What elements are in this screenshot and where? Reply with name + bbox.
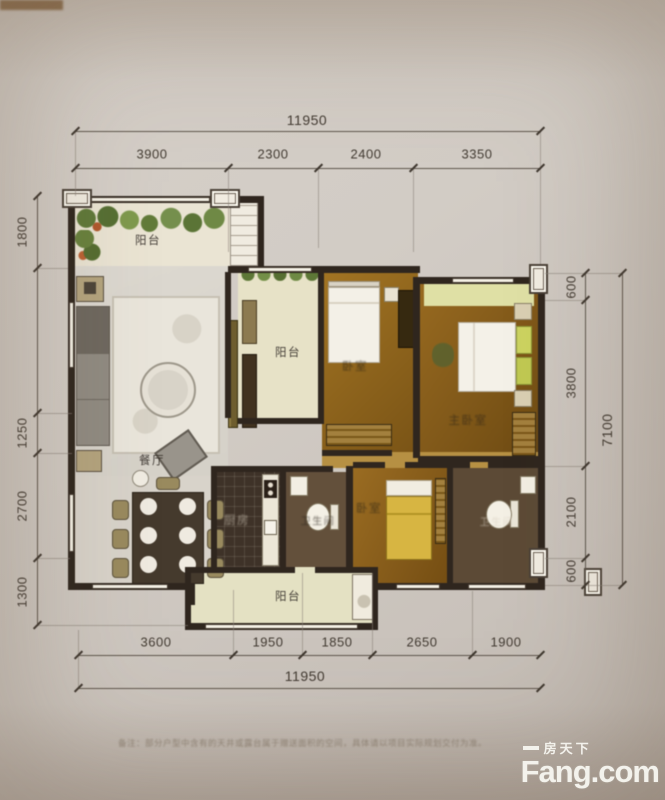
extension-line xyxy=(37,625,188,626)
pillar-ornament xyxy=(529,264,548,294)
dim-bottom-seg-3: 1850 xyxy=(322,635,353,650)
wall xyxy=(538,277,545,590)
room-label-bedroom-bottom: 卧室 xyxy=(356,500,382,516)
wall xyxy=(447,466,453,583)
dim-top-seg-4: 3350 xyxy=(462,147,493,162)
extension-line xyxy=(545,300,585,301)
balcony-cabinet-upper xyxy=(242,300,257,344)
extension-line xyxy=(545,466,585,467)
dim-right-seg-1: 600 xyxy=(564,275,579,298)
dimension-tick xyxy=(536,683,545,692)
window xyxy=(396,584,440,589)
balcony-cabinet-lower xyxy=(242,354,257,428)
window xyxy=(69,302,74,368)
wall xyxy=(488,462,545,468)
sofa xyxy=(76,306,110,446)
master-pillow xyxy=(516,326,532,354)
wall xyxy=(211,472,217,567)
coffee-table xyxy=(140,362,196,418)
extension-line xyxy=(78,630,79,688)
bed-yellow xyxy=(386,496,432,560)
nightstand xyxy=(514,303,532,320)
wall xyxy=(346,466,353,567)
bed-pillow xyxy=(386,480,432,496)
room-label-dining: 餐厅 xyxy=(139,452,165,468)
chair xyxy=(112,558,129,578)
pillar-ornament xyxy=(62,189,92,208)
pillar-ornament xyxy=(210,189,240,208)
dim-top-total: 11950 xyxy=(287,112,327,128)
dim-line-bottom-total xyxy=(78,688,540,689)
entry-cabinet xyxy=(230,202,258,266)
extension-line xyxy=(37,453,72,454)
photo-edge-artifact xyxy=(0,0,63,10)
room-label-balcony-mid: 阳台 xyxy=(275,344,301,360)
master-wardrobe xyxy=(512,412,536,456)
dim-line-right-chain xyxy=(585,273,586,585)
stove xyxy=(264,480,277,498)
chair xyxy=(112,529,129,549)
bed xyxy=(328,287,380,363)
master-pillow xyxy=(516,357,532,385)
room-label-bathroom-2: 卫生间 xyxy=(480,514,515,529)
wall xyxy=(185,567,295,573)
dim-right-total: 7100 xyxy=(599,413,615,446)
kitchen-sink xyxy=(264,520,277,535)
room-label-balcony-top: 阳台 xyxy=(135,232,161,248)
dim-bottom-total: 11950 xyxy=(285,668,325,684)
stool xyxy=(132,470,149,487)
plate xyxy=(179,527,196,544)
master-bed xyxy=(458,322,516,392)
window xyxy=(69,494,74,552)
plate xyxy=(179,498,196,515)
dim-bottom-seg-4: 2650 xyxy=(407,635,438,650)
dim-bottom-seg-5: 1900 xyxy=(491,635,522,650)
extension-line xyxy=(37,413,72,414)
wall xyxy=(225,272,231,418)
wall xyxy=(322,450,392,456)
extension-line xyxy=(372,573,373,655)
side-table-inner xyxy=(84,282,96,294)
fang-watermark: 房天下 Fang.com xyxy=(521,738,659,786)
window xyxy=(82,197,210,202)
dim-top-seg-3: 2400 xyxy=(351,147,382,162)
chair xyxy=(156,477,180,490)
wall xyxy=(188,583,195,605)
floorplan-photo: 阳台 阳台 餐厅 卧室 主卧室 厨房 卫生间 卧室 卫生间 阳台 xyxy=(0,0,665,800)
plate xyxy=(140,527,157,544)
wall xyxy=(238,418,324,424)
window xyxy=(92,584,168,589)
extension-line xyxy=(540,131,541,264)
bathroom-1-sink xyxy=(290,476,308,496)
disclaimer-note: 备注：部分户型中含有的天井或露台属于赠送面积的空间，具体请以项目实际规划交付为准… xyxy=(118,737,558,749)
chair xyxy=(112,500,129,520)
extension-line xyxy=(37,268,68,269)
side-table-2 xyxy=(76,450,102,472)
wall xyxy=(211,466,333,472)
dim-left-seg-1: 1800 xyxy=(15,217,30,248)
extension-line xyxy=(413,168,414,252)
dim-left-seg-4: 1300 xyxy=(15,577,30,608)
extension-line xyxy=(75,131,76,196)
wall xyxy=(318,272,324,418)
dim-bottom-seg-1: 3600 xyxy=(141,635,172,650)
room-label-master: 主卧室 xyxy=(449,412,488,428)
dim-right-seg-3: 2100 xyxy=(564,497,579,528)
dim-line-top-total xyxy=(75,131,540,132)
window xyxy=(452,278,514,283)
pillar-ornament xyxy=(529,548,548,578)
window xyxy=(248,267,312,272)
dim-line-right-total xyxy=(622,273,623,585)
extension-line xyxy=(233,590,234,655)
bathroom-2-sink xyxy=(520,476,536,494)
nightstand xyxy=(384,287,399,302)
master-plant xyxy=(432,340,454,370)
wall xyxy=(413,284,420,458)
dim-line-top-segments xyxy=(75,168,540,169)
wall xyxy=(315,567,378,573)
extension-line xyxy=(37,558,70,559)
wall xyxy=(405,462,470,468)
room-label-bedroom-top: 卧室 xyxy=(342,358,368,374)
room-label-balcony-bottom: 阳台 xyxy=(275,588,301,604)
extension-line xyxy=(302,573,303,655)
nightstand xyxy=(514,390,532,407)
plants-top-balcony-left xyxy=(74,230,104,264)
wardrobe xyxy=(435,478,446,544)
dim-top-seg-1: 3900 xyxy=(137,147,168,162)
wall xyxy=(258,202,264,268)
fang-watermark-en: Fang.com xyxy=(521,758,659,786)
dim-left-seg-3: 2700 xyxy=(15,491,30,522)
window xyxy=(468,584,526,589)
plate xyxy=(140,498,157,515)
wall xyxy=(353,462,385,468)
dimension-tick xyxy=(536,650,545,659)
wardrobe xyxy=(326,424,392,446)
dimension-tick xyxy=(618,580,627,589)
dim-top-seg-2: 2300 xyxy=(258,147,289,162)
window xyxy=(205,624,358,629)
dim-bottom-seg-2: 1950 xyxy=(253,635,284,650)
extension-line xyxy=(318,168,319,248)
plate xyxy=(140,556,157,573)
dim-right-seg-4: 600 xyxy=(564,559,579,582)
wall xyxy=(280,472,286,567)
extension-line xyxy=(228,168,229,252)
room-label-bathroom-1: 卫生间 xyxy=(301,513,336,528)
extension-line xyxy=(472,591,473,655)
dim-left-seg-2: 1250 xyxy=(15,418,30,449)
dim-right-seg-2: 3800 xyxy=(564,368,579,399)
floorplan-scene: 阳台 阳台 餐厅 卧室 主卧室 厨房 卫生间 卧室 卫生间 阳台 xyxy=(0,0,665,800)
room-label-kitchen: 厨房 xyxy=(224,512,250,528)
